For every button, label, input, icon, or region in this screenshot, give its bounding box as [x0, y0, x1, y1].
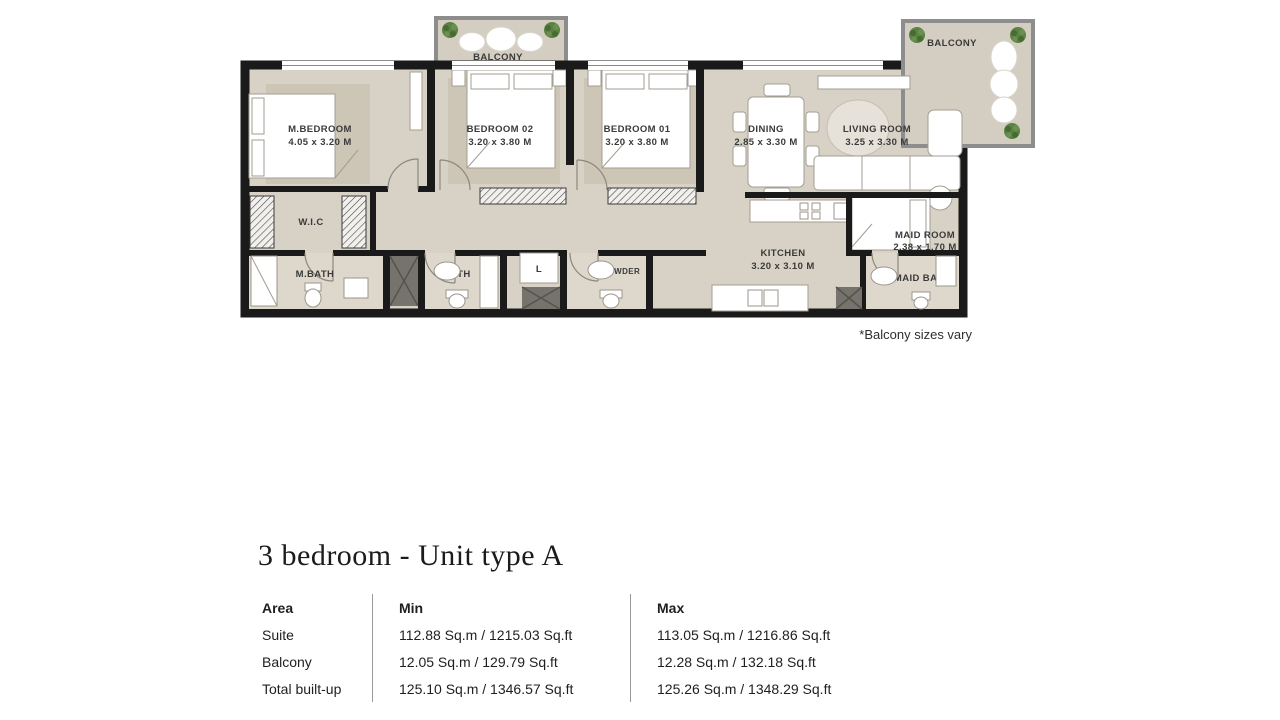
page-title: 3 bedroom - Unit type A: [258, 539, 564, 573]
row-label: Suite: [262, 621, 372, 648]
label-kitchen: KITCHEN: [760, 248, 805, 259]
plant-icon: [1004, 123, 1020, 139]
label-kitchen-dims: 3.20 x 3.10 M: [751, 261, 814, 272]
label-maid-room: MAID ROOM: [895, 230, 955, 241]
floorplan-page: M.BEDROOM 4.05 x 3.20 M BEDROOM 02 3.20 …: [0, 0, 1280, 720]
row-max-value: 12.28 Sq.m / 132.18 Sq.ft: [630, 648, 892, 675]
label-balcony-left: BALCONY: [473, 52, 523, 63]
col-header-max: Max: [630, 594, 892, 621]
label-dining-dims: 2.85 x 3.30 M: [734, 137, 797, 148]
label-bedroom-02-dims: 3.20 x 3.80 M: [468, 137, 531, 148]
col-header-area: Area: [262, 594, 372, 621]
label-bedroom-01: BEDROOM 01: [604, 124, 671, 135]
row-label: Total built-up: [262, 675, 372, 702]
label-living-room-dims: 3.25 x 3.30 M: [845, 137, 908, 148]
label-wic: W.I.C: [298, 217, 323, 228]
row-min-value: 112.88 Sq.m / 1215.03 Sq.ft: [372, 621, 630, 648]
label-maid-room-dims: 2.38 x 1.70 M: [893, 242, 956, 253]
plant-icon: [544, 22, 560, 38]
row-min-value: 12.05 Sq.m / 129.79 Sq.ft: [372, 648, 630, 675]
plant-icon: [442, 22, 458, 38]
row-label: Balcony: [262, 648, 372, 675]
row-max-value: 113.05 Sq.m / 1216.86 Sq.ft: [630, 621, 892, 648]
label-bedroom-02: BEDROOM 02: [467, 124, 534, 135]
table-row-total: Total built-up 125.10 Sq.m / 1346.57 Sq.…: [262, 675, 892, 702]
label-m-bedroom: M.BEDROOM: [288, 124, 352, 135]
label-dining: DINING: [748, 124, 784, 135]
label-balcony-right: BALCONY: [927, 38, 977, 49]
row-min-value: 125.10 Sq.m / 1346.57 Sq.ft: [372, 675, 630, 702]
col-header-min: Min: [372, 594, 630, 621]
table-header-row: Area Min Max: [262, 594, 892, 621]
row-max-value: 125.26 Sq.m / 1348.29 Sq.ft: [630, 675, 892, 702]
table-row-suite: Suite 112.88 Sq.m / 1215.03 Sq.ft 113.05…: [262, 621, 892, 648]
plant-icon: [909, 27, 925, 43]
balcony-note: *Balcony sizes vary: [0, 327, 972, 342]
label-m-bath: M.BATH: [296, 269, 335, 280]
table-row-balcony: Balcony 12.05 Sq.m / 129.79 Sq.ft 12.28 …: [262, 648, 892, 675]
area-table: Area Min Max Suite 112.88 Sq.m / 1215.03…: [262, 594, 892, 702]
plant-icon: [1010, 27, 1026, 43]
label-m-bedroom-dims: 4.05 x 3.20 M: [288, 137, 351, 148]
label-laundry: L: [536, 264, 542, 275]
label-living-room: LIVING ROOM: [843, 124, 911, 135]
label-bedroom-01-dims: 3.20 x 3.80 M: [605, 137, 668, 148]
